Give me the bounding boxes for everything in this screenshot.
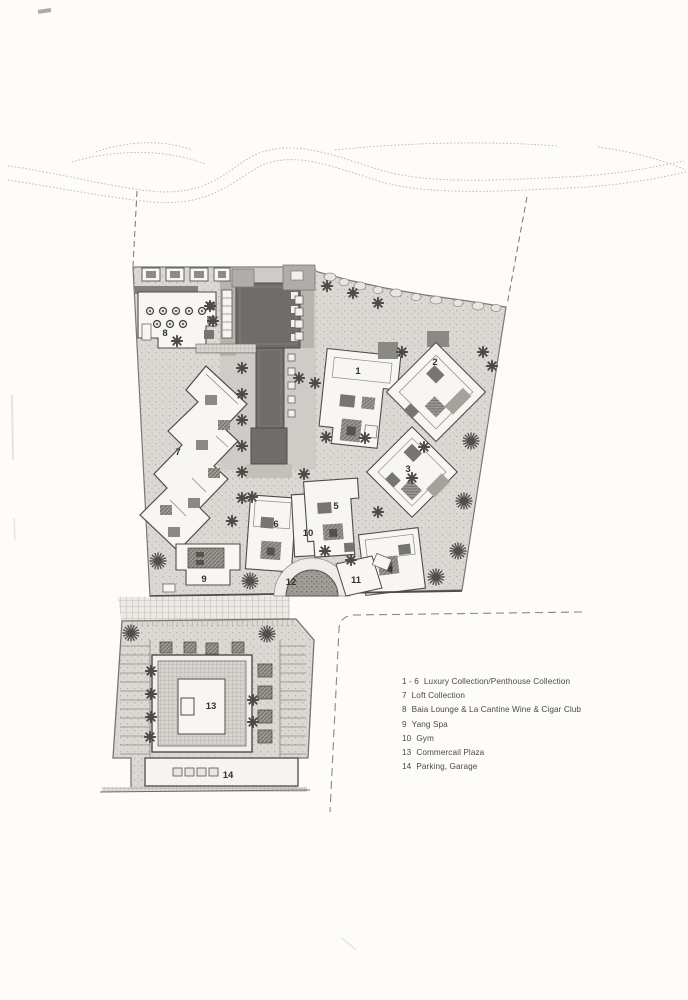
tree-icon [237, 389, 247, 399]
tree-icon [397, 347, 407, 357]
legend-item: 14 Parking, Garage [402, 760, 581, 774]
legend-item-number: 9 [402, 718, 407, 732]
building-6-villa [245, 495, 296, 572]
legend-item-number: 10 [402, 732, 411, 746]
building-label-12: 12 [286, 577, 297, 588]
legend-item-label: Commercail Plaza [416, 746, 484, 760]
palm-tree-icon [259, 626, 275, 642]
legend-item: 13 Commercail Plaza [402, 746, 581, 760]
tree-icon [294, 373, 304, 383]
tree-icon [478, 347, 488, 357]
legend-item-number: 14 [402, 760, 411, 774]
building-label-1: 1 [355, 366, 361, 377]
tree-icon [487, 361, 497, 371]
legend-item-label: Gym [416, 732, 434, 746]
tree-icon [146, 689, 156, 699]
tree-icon [348, 288, 358, 298]
building-label-2: 2 [432, 357, 437, 368]
tree-icon [237, 493, 247, 503]
main-parcel [118, 265, 506, 627]
tree-icon [248, 695, 258, 705]
legend-item-label: Baia Lounge & La Cantine Wine & Cigar Cl… [412, 703, 581, 717]
palm-tree-icon [242, 573, 258, 589]
tree-icon [237, 467, 247, 477]
building-label-7: 7 [175, 447, 180, 458]
legend-item: 10 Gym [402, 732, 581, 746]
building-label-11: 11 [351, 575, 362, 586]
legend-item: 1 - 6 Luxury Collection/Penthouse Collec… [402, 675, 581, 689]
building-label-14: 14 [223, 770, 234, 781]
legend-item: 9 Yang Spa [402, 718, 581, 732]
tree-icon [237, 415, 247, 425]
legend-item-number: 7 [402, 689, 407, 703]
tree-icon [310, 378, 320, 388]
tree-icon [373, 298, 383, 308]
building-1-roof-annex [378, 342, 398, 359]
tree-icon [373, 507, 383, 517]
tree-icon [205, 301, 215, 311]
tree-icon [145, 732, 155, 742]
building-13-commercial-plaza [152, 655, 252, 752]
tree-icon [320, 546, 330, 556]
walkway-steps [222, 290, 232, 338]
legend-item-number: 8 [402, 703, 407, 717]
palm-tree-icon [150, 553, 166, 569]
legend-item: 8 Baia Lounge & La Cantine Wine & Cigar … [402, 703, 581, 717]
building-label-5: 5 [333, 501, 339, 512]
palm-tree-icon [428, 569, 444, 585]
tree-icon [227, 516, 237, 526]
tree-icon [146, 666, 156, 676]
building-label-9: 9 [201, 574, 206, 585]
pool-walk [246, 464, 292, 478]
tree-icon [237, 441, 247, 451]
palm-tree-icon [123, 625, 139, 641]
tree-icon [360, 433, 370, 443]
tree-icon [248, 717, 258, 727]
legend-item: 7 Loft Collection [402, 689, 581, 703]
tree-icon [247, 492, 257, 502]
tree-icon [346, 555, 356, 565]
site-plan-drawing: 1 2 3 4 5 6 7 8 9 10 11 12 13 14 [0, 0, 688, 1000]
legend-item-label: Loft Collection [412, 689, 465, 703]
tree-icon [321, 432, 331, 442]
building-label-4: 4 [387, 565, 393, 576]
palm-tree-icon [463, 433, 479, 449]
legend-item-label: Parking, Garage [416, 760, 477, 774]
legend-item-number: 13 [402, 746, 411, 760]
building-label-10: 10 [303, 528, 314, 539]
building-label-6: 6 [273, 519, 278, 530]
building-label-8: 8 [162, 328, 167, 339]
tree-icon [146, 712, 156, 722]
building-label-13: 13 [206, 701, 217, 712]
palm-tree-icon [450, 543, 466, 559]
tree-icon [172, 336, 182, 346]
legend-item-number: 1 - 6 [402, 675, 419, 689]
curb-ticks [128, 620, 293, 627]
tree-icon [322, 281, 332, 291]
scanned-site-plan-page: 1 2 3 4 5 6 7 8 9 10 11 12 13 14 1 - 6 L… [0, 0, 688, 1000]
tree-icon [208, 316, 218, 326]
tree-icon [299, 469, 309, 479]
legend-item-label: Luxury Collection/Penthouse Collection [424, 675, 570, 689]
tree-icon [237, 363, 247, 373]
legend-item-label: Yang Spa [412, 718, 448, 732]
building-label-3: 3 [405, 464, 410, 475]
legend: 1 - 6 Luxury Collection/Penthouse Collec… [402, 675, 581, 774]
tree-icon [419, 442, 429, 452]
palm-tree-icon [456, 493, 472, 509]
